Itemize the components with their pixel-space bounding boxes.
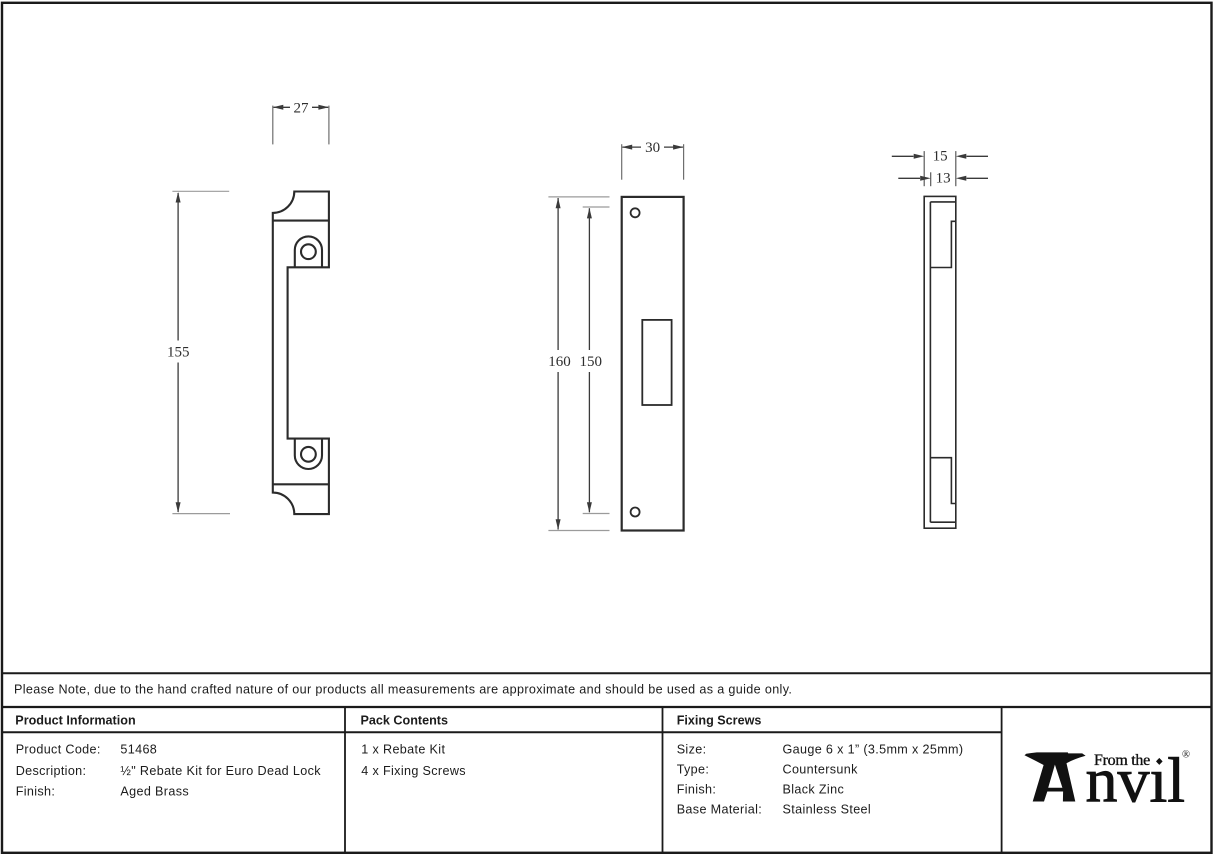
svg-text:Base Material:: Base Material: bbox=[677, 802, 762, 816]
svg-text:Countersunk: Countersunk bbox=[783, 763, 859, 777]
svg-text:51468: 51468 bbox=[120, 743, 157, 757]
svg-text:Description:: Description: bbox=[16, 764, 87, 778]
svg-text:155: 155 bbox=[167, 344, 190, 360]
svg-text:13: 13 bbox=[936, 170, 951, 186]
svg-text:Fixing Screws: Fixing Screws bbox=[677, 713, 762, 727]
svg-text:®: ® bbox=[1182, 750, 1190, 761]
svg-text:Product Information: Product Information bbox=[15, 713, 135, 727]
svg-text:15: 15 bbox=[933, 148, 948, 164]
svg-text:Pack Contents: Pack Contents bbox=[361, 713, 448, 727]
svg-text:27: 27 bbox=[294, 100, 310, 116]
svg-text:Size:: Size: bbox=[677, 742, 707, 756]
svg-text:Black Zinc: Black Zinc bbox=[783, 783, 845, 797]
svg-text:30: 30 bbox=[645, 140, 660, 156]
svg-text:Please Note, due to the hand c: Please Note, due to the hand crafted nat… bbox=[14, 683, 792, 697]
svg-text:From the: From the bbox=[1094, 752, 1150, 769]
svg-text:Aged Brass: Aged Brass bbox=[120, 785, 189, 799]
svg-text:160: 160 bbox=[548, 354, 571, 370]
svg-text:4 x Fixing Screws: 4 x Fixing Screws bbox=[361, 764, 466, 778]
svg-text:½" Rebate Kit for Euro Dead Lo: ½" Rebate Kit for Euro Dead Lock bbox=[120, 764, 321, 778]
svg-text:Stainless Steel: Stainless Steel bbox=[783, 802, 872, 816]
svg-text:1 x Rebate Kit: 1 x Rebate Kit bbox=[361, 743, 445, 757]
svg-text:Type:: Type: bbox=[677, 763, 710, 777]
svg-text:Product Code:: Product Code: bbox=[16, 743, 101, 757]
svg-text:Finish:: Finish: bbox=[677, 783, 717, 797]
svg-text:Finish:: Finish: bbox=[16, 785, 56, 799]
svg-text:Gauge 6 x 1” (3.5mm x 25mm): Gauge 6 x 1” (3.5mm x 25mm) bbox=[783, 742, 964, 756]
svg-text:150: 150 bbox=[579, 354, 602, 370]
